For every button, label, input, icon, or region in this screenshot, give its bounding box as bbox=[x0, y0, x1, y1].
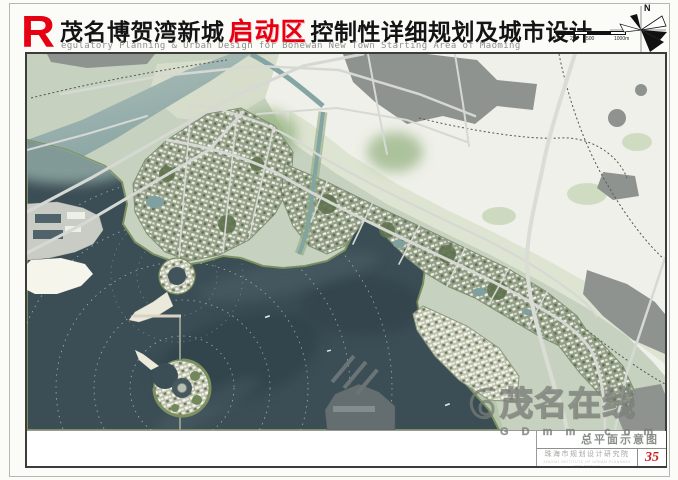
scale-label: 250 bbox=[570, 36, 578, 42]
title-block: 总平面示意图 珠海市规划设计研究院 ZHUHAI INSTITUTE OF UR… bbox=[536, 431, 666, 466]
drawing-title: 总平面示意图 bbox=[537, 431, 666, 448]
institute-name: 珠海市规划设计研究院 bbox=[537, 450, 637, 459]
scale-label: 500 bbox=[586, 36, 594, 42]
institute-cell: 珠海市规划设计研究院 ZHUHAI INSTITUTE OF URBAN PLA… bbox=[537, 449, 637, 466]
wetland-patch bbox=[367, 132, 423, 172]
north-label: N bbox=[644, 3, 651, 13]
masterplan-map bbox=[27, 54, 665, 431]
sheet-frame: 总平面示意图 珠海市规划设计研究院 ZHUHAI INSTITUTE OF UR… bbox=[25, 52, 667, 468]
masterplan-graphic bbox=[27, 54, 665, 430]
green-patch bbox=[482, 207, 516, 225]
page-subtitle-en: egulatory Planning & Urban Design for Bo… bbox=[61, 41, 521, 51]
title-block-row: 珠海市规划设计研究院 ZHUHAI INSTITUTE OF URBAN PLA… bbox=[537, 448, 666, 466]
page-number: 35 bbox=[637, 449, 666, 466]
institute-name-en: ZHUHAI INSTITUTE OF URBAN PLANNING AND D… bbox=[542, 460, 632, 467]
scale-label: 0 bbox=[555, 36, 558, 42]
green-patch bbox=[622, 133, 652, 151]
logo-r: R bbox=[21, 9, 53, 53]
north-arrow-graphic bbox=[604, 2, 670, 56]
north-arrow: N bbox=[604, 2, 670, 56]
